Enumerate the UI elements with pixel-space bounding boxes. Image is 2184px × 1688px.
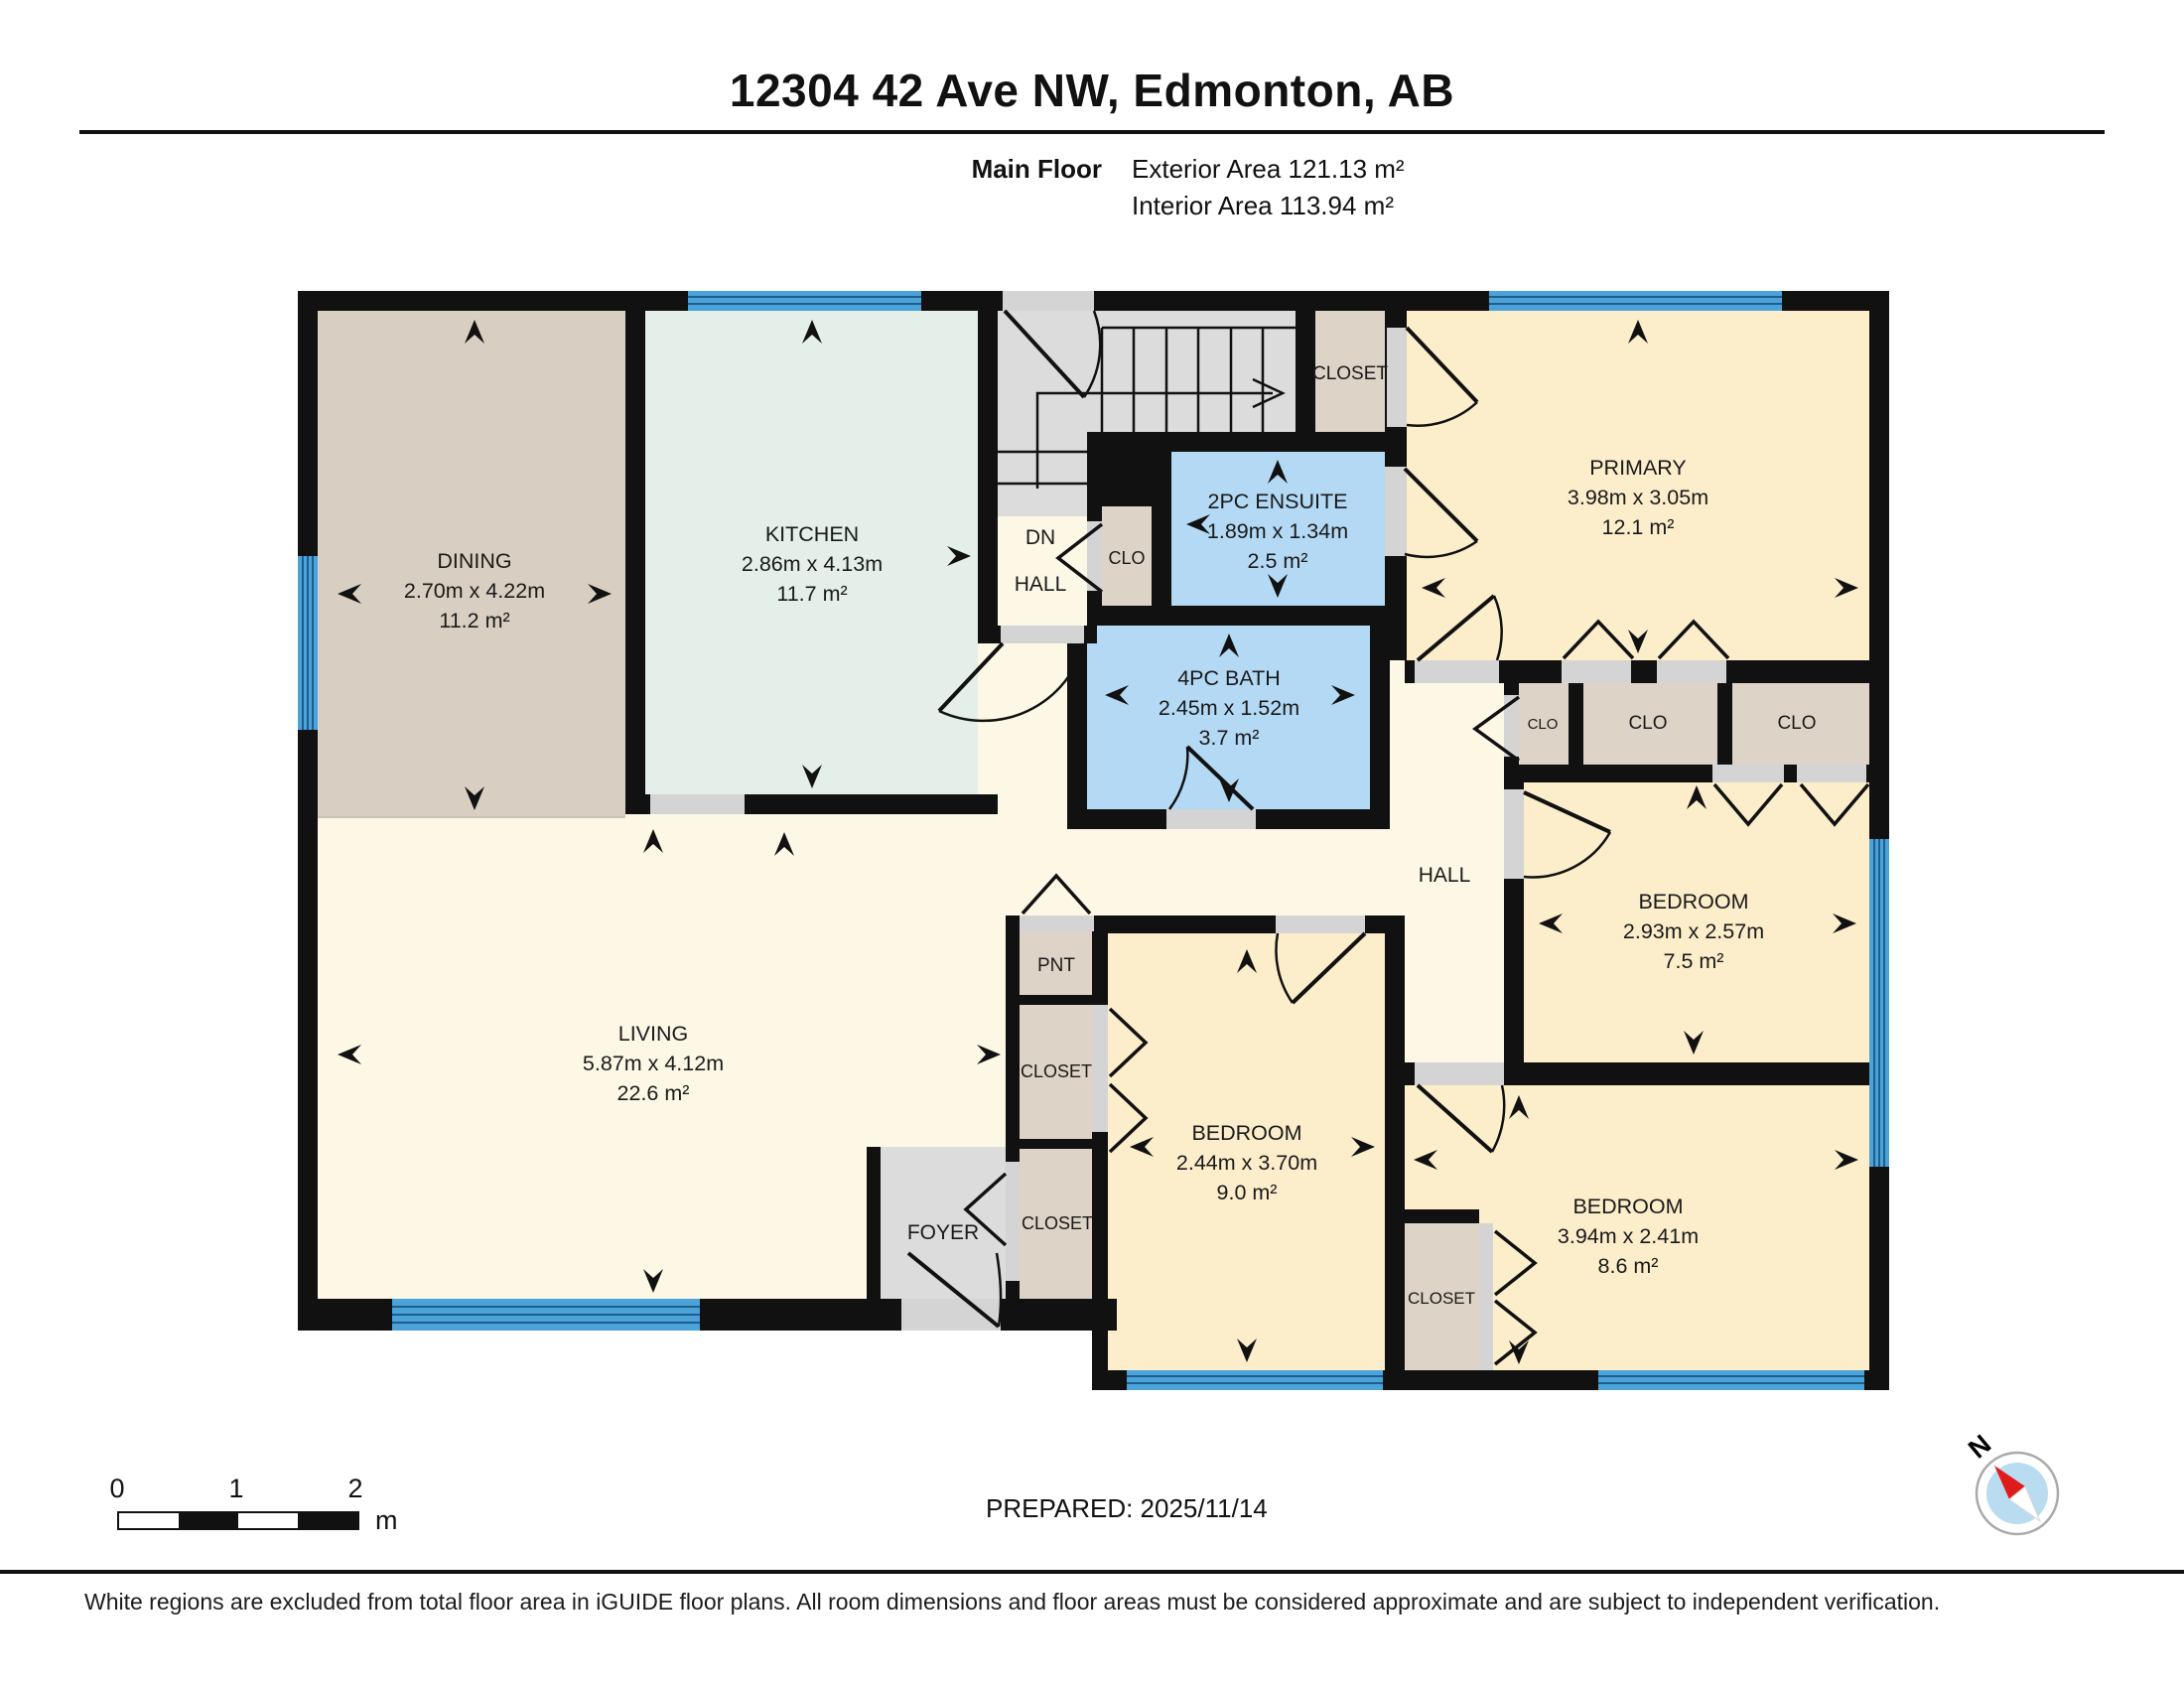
label-hall-upper: HALL [1015, 573, 1067, 596]
label-clo-a: CLO [1528, 716, 1559, 733]
compass: N [1954, 1426, 2083, 1555]
label-hall-lower: HALL [1419, 864, 1471, 887]
label-closet-b: CLOSET [1408, 1289, 1475, 1308]
label-pnt: PNT [1037, 955, 1075, 976]
scale-tick-2: 2 [347, 1474, 362, 1504]
window-bedroom-mid-bottom [1127, 1370, 1383, 1390]
label-dn: DN [1025, 526, 1055, 549]
label-foyer: FOYER [907, 1221, 979, 1244]
footer-divider [0, 1570, 2184, 1574]
stairs-landing [998, 432, 1087, 516]
label-clo-c: CLO [1777, 713, 1816, 734]
label-closet-2: CLOSET [1022, 1213, 1093, 1233]
scale-tick-0: 0 [109, 1474, 124, 1504]
window-primary-top [1489, 291, 1782, 311]
window-living-bottom [392, 1299, 700, 1331]
window-dining-left [298, 556, 318, 730]
compass-north-label: N [1963, 1429, 1996, 1465]
label-clo-b: CLO [1628, 713, 1667, 734]
label-clo-hall: CLO [1108, 548, 1145, 568]
scale-tick-1: 1 [228, 1474, 243, 1504]
footer-disclaimer: White regions are excluded from total fl… [84, 1589, 2154, 1616]
scale-unit: m [375, 1505, 398, 1536]
label-closet-stairs: CLOSET [1312, 363, 1388, 384]
scale-bar-segments [117, 1511, 359, 1530]
room-stairs [998, 311, 1296, 432]
prepared-date: PREPARED: 2025/11/14 [986, 1493, 1268, 1524]
floor-plan: DINING2.70m x 4.22m11.2 m²KITCHEN2.86m x… [0, 0, 2184, 1688]
scale-bar: 0 1 2 m [109, 1474, 437, 1543]
window-kitchen-top [688, 291, 921, 311]
floor-plan-page: { "header": { "title": "12304 42 Ave NW,… [0, 0, 2184, 1688]
window-bedroom-se-bottom [1598, 1370, 1864, 1390]
window-bedroom-ne-right [1869, 839, 1889, 1167]
label-closet-1: CLOSET [1021, 1061, 1092, 1081]
